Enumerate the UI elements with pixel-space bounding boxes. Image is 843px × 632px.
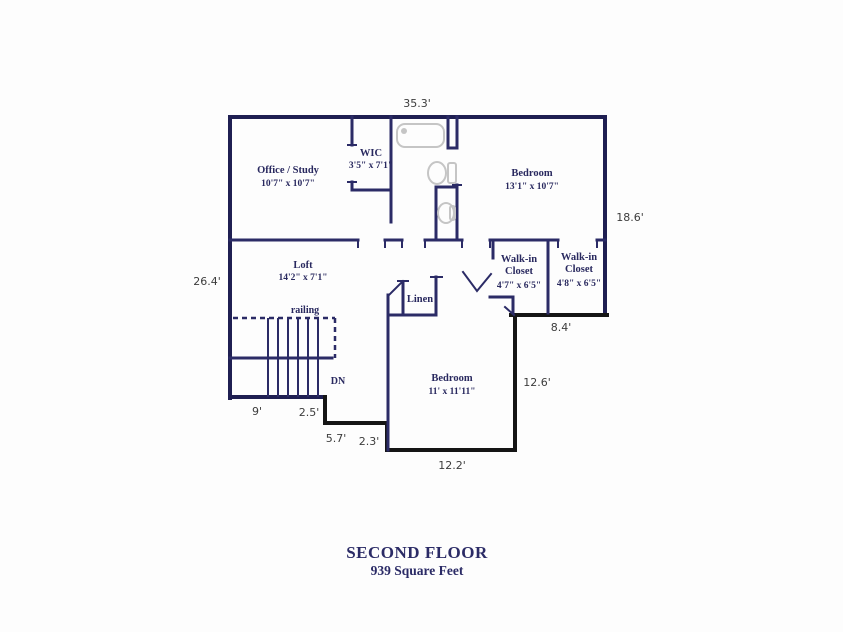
dim-left: 26.4'	[193, 275, 221, 288]
dim-step-right: 8.4'	[551, 321, 572, 334]
sink-icon	[428, 162, 446, 184]
closet-right-dims: 4'8" x 6'5"	[557, 279, 601, 289]
dim-bedroom-right: 12.6'	[523, 376, 551, 389]
page-subtitle: 939 Square Feet	[371, 563, 464, 578]
wic-label: WIC	[360, 148, 382, 159]
closet-right-label2: Closet	[565, 264, 593, 275]
railing-label: railing	[291, 305, 319, 316]
floor-plan-page: Office / Study 10'7" x 10'7" WIC 3'5" x …	[0, 0, 843, 632]
dim-notch-bottom: 5.7'	[326, 432, 347, 445]
linen-label: Linen	[407, 294, 433, 305]
closet-left-dims: 4'7" x 6'5"	[497, 281, 541, 291]
bedroom1-label: Bedroom	[511, 168, 552, 179]
dim-bedroom-bottom: 12.2'	[438, 459, 466, 472]
dim-stair-step: 2.5'	[299, 406, 320, 419]
wic-dims: 3'5" x 7'1"	[349, 161, 393, 171]
tub-alcove-wall	[448, 117, 457, 148]
dim-right: 18.6'	[616, 211, 644, 224]
closet-left-label2: Closet	[505, 266, 533, 277]
stairs	[230, 318, 335, 397]
dim-stair-run: 9'	[252, 405, 262, 418]
bedroom2-label: Bedroom	[431, 373, 472, 384]
closet-door-swing	[463, 272, 491, 291]
office-dims: 10'7" x 10'7"	[261, 179, 315, 189]
wall-bottom-steps	[325, 315, 515, 450]
office-label: Office / Study	[257, 165, 320, 176]
closet-walls	[463, 240, 548, 315]
bathtub-icon	[397, 124, 444, 147]
bedroom2-dims: 11' x 11'11"	[429, 387, 476, 397]
bedroom1-dims: 13'1" x 10'7"	[505, 182, 559, 192]
dim-top: 35.3'	[403, 97, 431, 110]
dim-notch-side: 2.3'	[359, 435, 380, 448]
floor-plan-svg: Office / Study 10'7" x 10'7" WIC 3'5" x …	[0, 0, 843, 632]
closet-right-label: Walk-in	[561, 252, 597, 263]
page-title: SECOND FLOOR	[346, 543, 488, 562]
down-label: DN	[331, 376, 346, 387]
closet-left-label: Walk-in	[501, 254, 537, 265]
loft-label: Loft	[293, 260, 313, 271]
loft-dims: 14'2" x 7'1"	[278, 273, 327, 283]
title-block: SECOND FLOOR 939 Square Feet	[346, 543, 488, 578]
linen-door-leaf	[388, 281, 403, 296]
sink-counter-icon	[448, 163, 456, 183]
tub-faucet-icon	[401, 128, 407, 134]
